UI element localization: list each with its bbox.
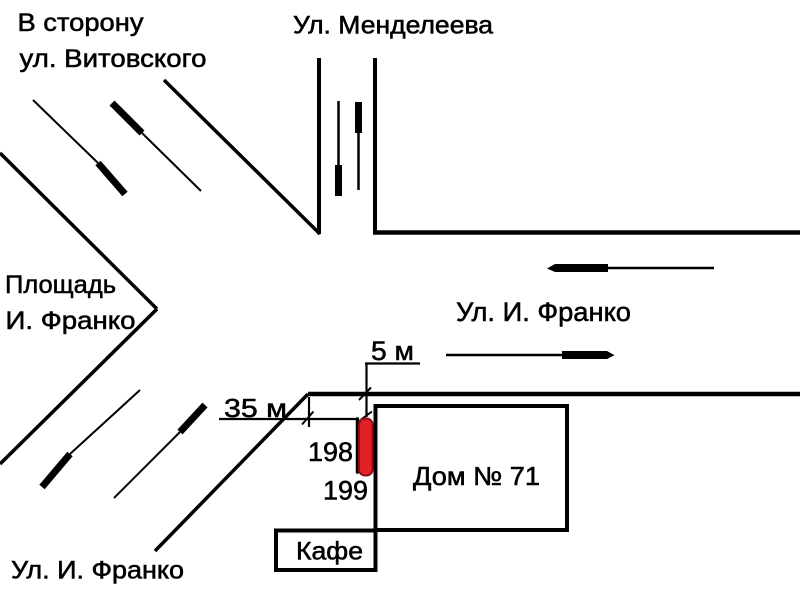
svg-text:199: 199 <box>323 476 368 506</box>
svg-text:В сторону: В сторону <box>18 9 145 37</box>
svg-text:Кафе: Кафе <box>296 538 363 566</box>
svg-text:198: 198 <box>308 437 353 467</box>
svg-text:ул. Витовского: ул. Витовского <box>20 45 207 73</box>
svg-text:Ул. Менделеева: Ул. Менделеева <box>293 12 493 40</box>
svg-text:5 м: 5 м <box>371 336 414 366</box>
svg-text:Ул. И. Франко: Ул. И. Франко <box>456 297 631 327</box>
svg-text:Дом № 71: Дом № 71 <box>413 461 540 491</box>
svg-text:Площадь: Площадь <box>5 271 116 299</box>
svg-text:И. Франко: И. Франко <box>6 307 136 335</box>
svg-text:Ул. И. Франко: Ул. И. Франко <box>11 557 184 585</box>
